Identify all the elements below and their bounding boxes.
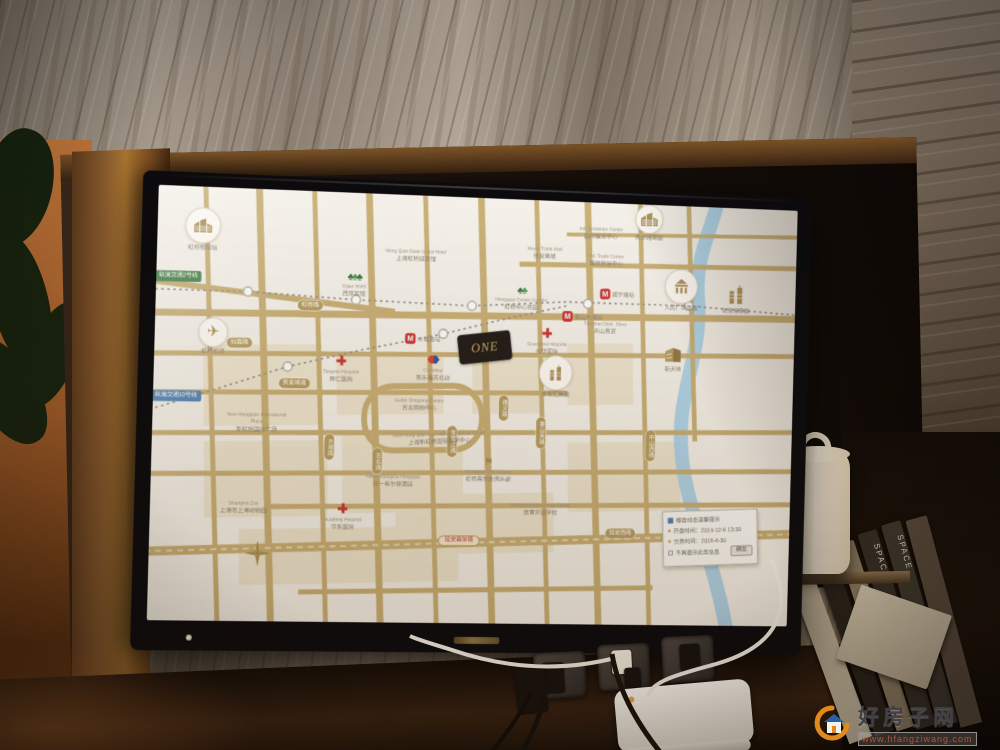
poi-xujiahui: 徐家汇商圈 bbox=[513, 355, 598, 401]
poi-huadong-hospital: Huadong Hospital 华东医院 bbox=[299, 503, 386, 533]
poi-intl-trade-center: Intl. Trade Center 国际贸易中心 bbox=[564, 253, 648, 270]
dialog-title-row: 楼盘动态温馨提示 bbox=[668, 513, 752, 524]
television[interactable]: 轨道交通2号线 轨道交通10号线 虹桥路 仙霞路 黄金城道 延安西路 水城路 古… bbox=[130, 170, 812, 655]
site-name: 好房子网 bbox=[858, 701, 977, 731]
temple-icon bbox=[665, 269, 699, 304]
tv-wrap: 轨道交通2号线 轨道交通10号线 虹桥路 仙霞路 黄金城道 延安西路 水城路 古… bbox=[130, 170, 812, 655]
metro-icon: M bbox=[600, 289, 610, 300]
screen-dialog: 楼盘动态温馨提示 开盘时间：2014-12-6 13:30 交房时间：2016-… bbox=[662, 509, 758, 568]
poi-shanghai-zoo: Shanghai Zoo 上海市上海动物园 bbox=[199, 500, 287, 516]
poi-center-garden: ♣♣ Hongqiao Center Garden 虹桥中心花园 bbox=[479, 284, 564, 314]
poi-xintiandi: 新天地 bbox=[631, 343, 714, 375]
metro-station-weining: M 威宁路站 bbox=[600, 289, 634, 300]
dialog-ok-button[interactable]: 确定 bbox=[730, 545, 752, 556]
road-ribbon: 娄山关路 bbox=[536, 417, 546, 448]
photo-scene: SPACE SPACE bbox=[0, 0, 1000, 750]
road-ribbon: 水城路 bbox=[324, 434, 334, 460]
project-logo: ONE bbox=[457, 330, 513, 365]
wall-outlet[interactable] bbox=[597, 643, 651, 692]
poi-jianqing-school: Jianqing Experimental School 建青实验学校 bbox=[498, 503, 583, 519]
bullet-icon bbox=[668, 540, 671, 543]
block-building-icon bbox=[662, 344, 684, 364]
dialog-line: 开盘时间：2014-12-6 13:30 bbox=[668, 524, 752, 535]
trees-icon: ♣♣ bbox=[517, 286, 526, 297]
router-led bbox=[628, 696, 635, 703]
poi-new-hongqiao-plaza: New Hongqiao International Plaza 新虹桥国际广场 bbox=[212, 411, 300, 435]
road-ribbon: 中山西路 bbox=[645, 430, 655, 461]
power-led bbox=[186, 635, 192, 641]
watermark-house-logo bbox=[814, 703, 852, 743]
power-adapter[interactable] bbox=[514, 667, 548, 714]
dialog-line: 交房时间：2016-6-30 bbox=[668, 535, 752, 546]
building-icon bbox=[635, 205, 663, 235]
watermark: 好房子网 www.hfangziwang.com bbox=[814, 698, 996, 748]
poi-xijiao-hotel: ♣♣♣ Xijiao Hotel 西郊宾馆 bbox=[310, 270, 397, 300]
poi-hongqiao-airport: ✈ 虹桥机场 bbox=[168, 316, 257, 357]
poi-tongren-hospital: Tongren Hospital 同仁医院 bbox=[297, 355, 384, 385]
carrefour-icon bbox=[427, 355, 440, 364]
info-icon bbox=[668, 517, 674, 523]
poi-nanjing-road: 南京路商圈 bbox=[607, 204, 691, 245]
airplane-icon: ✈ bbox=[198, 317, 228, 347]
elevated-road-badge: 延安高架路 bbox=[438, 535, 480, 546]
trees-icon: ♣♣♣ bbox=[348, 272, 361, 283]
road-ribbon: 古北路 bbox=[372, 448, 382, 474]
checkbox-icon[interactable] bbox=[668, 550, 673, 555]
location-map: 轨道交通2号线 轨道交通10号线 虹桥路 仙霞路 黄金城道 延安西路 水城路 古… bbox=[147, 185, 798, 627]
road-ribbon: 虹桥路 bbox=[298, 300, 323, 310]
dialog-footer-row: 不再提示此类信息 确定 bbox=[668, 545, 752, 558]
towers-icon bbox=[725, 284, 747, 306]
hospital-cross-icon bbox=[338, 503, 348, 513]
counter-light-glow bbox=[0, 640, 260, 750]
hospital-cross-icon bbox=[542, 328, 552, 338]
metro-station-shuicheng: M 水城路站 bbox=[405, 333, 440, 344]
tv-screen: 轨道交通2号线 轨道交通10号线 虹桥路 仙霞路 黄金城道 延安西路 水城路 古… bbox=[147, 185, 798, 627]
compass-rose bbox=[244, 540, 270, 566]
poi-golf-course: ⚑ Hongqiao Golf Course 虹桥高尔夫俱乐部 bbox=[446, 455, 531, 485]
dialog-title: 楼盘动态温馨提示 bbox=[676, 514, 720, 524]
poi-tianshan-store: Tianshan Dept. Store 天山百货 bbox=[563, 321, 647, 338]
road-ribbon: 遵义路 bbox=[499, 395, 509, 420]
metro-line-2-ribbon: 轨道交通2号线 bbox=[155, 270, 202, 282]
poi-state-guest-hotel: Hong Qiao State Guest Hotel 上海虹桥迎宾馆 bbox=[373, 248, 459, 265]
wall-outlet[interactable] bbox=[661, 635, 715, 684]
power-plug[interactable] bbox=[624, 667, 641, 688]
wifi-router[interactable] bbox=[613, 678, 754, 750]
site-url: www.hfangziwang.com bbox=[858, 732, 977, 746]
watermark-text: 好房子网 www.hfangziwang.com bbox=[858, 701, 977, 746]
poi-lujiazui: 陆家嘴商圈 bbox=[695, 283, 777, 317]
road-ribbon: 延安西路 bbox=[605, 528, 635, 538]
poi-hilton: Hilton Shanghai Hongqiao 元一希尔顿酒店 bbox=[350, 474, 436, 490]
metro-icon: M bbox=[405, 333, 416, 344]
tv-brand-logo bbox=[453, 637, 499, 644]
hospital-cross-icon bbox=[336, 355, 346, 365]
poi-gubei-shopping: Gubei Shopping Centre 古北购物中心 bbox=[376, 397, 462, 414]
power-plug[interactable] bbox=[679, 643, 700, 670]
poi-hongqiao-hub: 虹桥枢纽站 bbox=[158, 206, 247, 254]
twin-towers-icon bbox=[539, 355, 573, 391]
golf-flag-icon: ⚑ bbox=[484, 457, 494, 469]
bullet-icon bbox=[668, 529, 671, 532]
building-icon bbox=[185, 207, 221, 244]
metro-line-10-ribbon: 轨道交通10号线 bbox=[151, 390, 201, 402]
